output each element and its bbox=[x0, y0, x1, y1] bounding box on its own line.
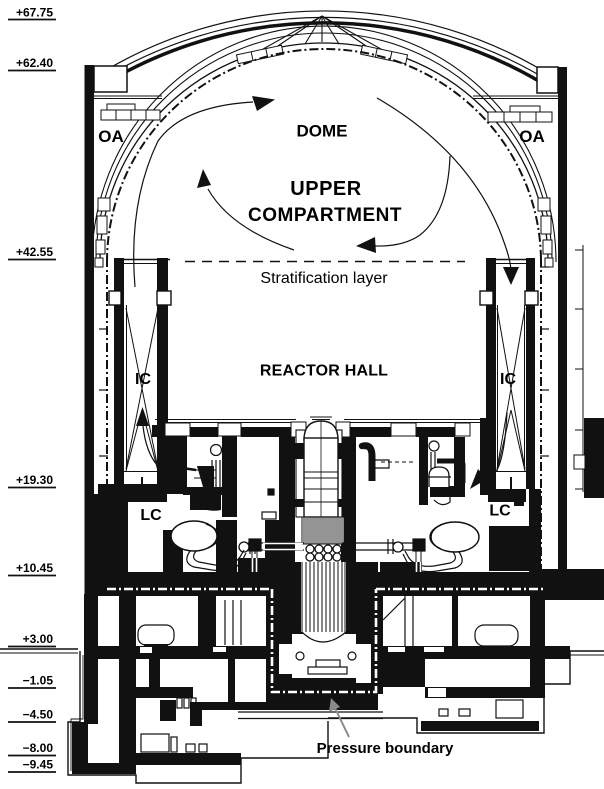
svg-text:+3.00: +3.00 bbox=[23, 632, 54, 646]
svg-text:REACTOR HALL: REACTOR HALL bbox=[260, 363, 388, 380]
svg-text:−9.45: −9.45 bbox=[23, 758, 54, 772]
svg-text:UPPER: UPPER bbox=[290, 178, 361, 200]
svg-text:DOME: DOME bbox=[297, 122, 348, 141]
svg-text:OA: OA bbox=[519, 127, 545, 146]
svg-text:Pressure boundary: Pressure boundary bbox=[317, 740, 454, 757]
svg-text:+42.55: +42.55 bbox=[16, 245, 53, 259]
svg-text:+10.45: +10.45 bbox=[16, 561, 53, 575]
svg-text:LC: LC bbox=[489, 503, 511, 520]
svg-text:+62.40: +62.40 bbox=[16, 56, 53, 70]
svg-text:Stratification layer: Stratification layer bbox=[260, 270, 388, 287]
svg-text:COMPARTMENT: COMPARTMENT bbox=[248, 205, 402, 226]
svg-text:IC: IC bbox=[500, 371, 516, 388]
svg-text:+19.30: +19.30 bbox=[16, 473, 53, 487]
svg-text:−1.05: −1.05 bbox=[23, 674, 54, 688]
svg-text:+67.75: +67.75 bbox=[16, 6, 53, 20]
svg-text:−8.00: −8.00 bbox=[23, 741, 54, 755]
svg-text:IC: IC bbox=[135, 371, 151, 388]
svg-text:OA: OA bbox=[98, 127, 124, 146]
svg-text:LC: LC bbox=[140, 507, 162, 524]
svg-text:−4.50: −4.50 bbox=[23, 708, 54, 722]
